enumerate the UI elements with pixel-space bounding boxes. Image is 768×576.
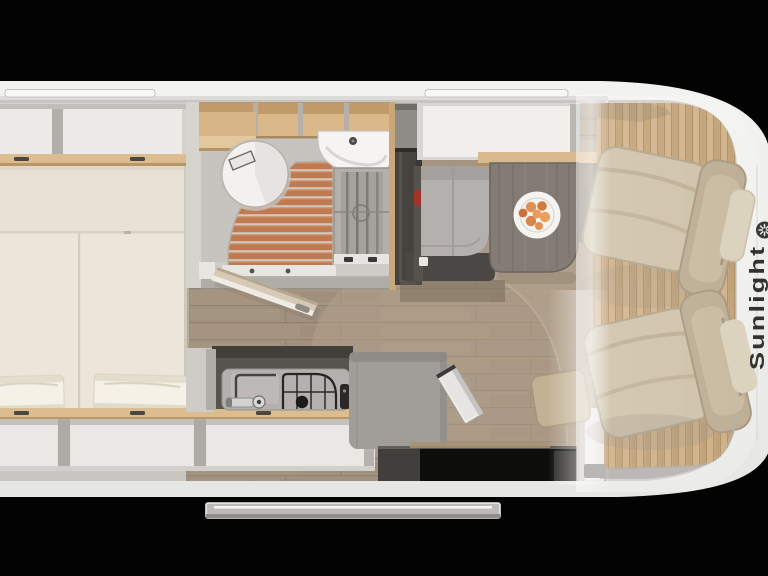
svg-text:Sunlight: Sunlight (746, 245, 768, 370)
